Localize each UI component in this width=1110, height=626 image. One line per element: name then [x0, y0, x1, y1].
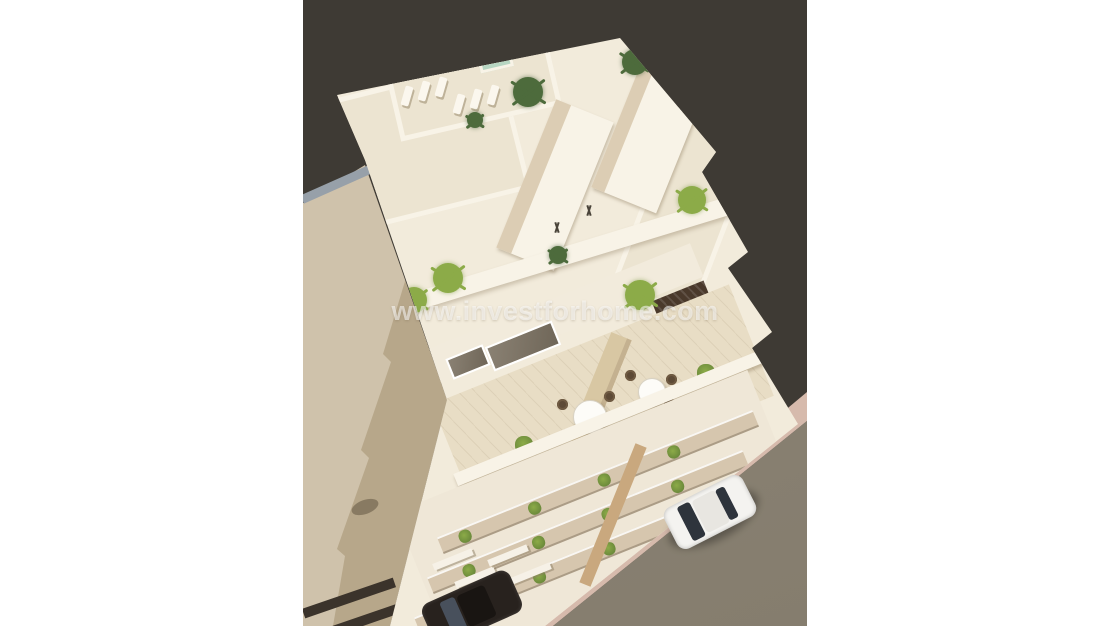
rooftop-tree [622, 49, 648, 75]
balcony-plant [530, 534, 547, 551]
balcony-plant [457, 528, 474, 545]
terrace-chair [557, 399, 568, 410]
rooftop-tree [549, 246, 567, 264]
balcony-plant [596, 472, 613, 489]
terrace-chair [625, 370, 636, 381]
rooftop-tree [513, 77, 543, 107]
palm-tree [678, 186, 706, 214]
terrace-chair [604, 391, 615, 402]
balcony-plant [665, 443, 682, 460]
balcony-plant [526, 500, 543, 517]
photo-canvas: www.investforhome.com [0, 0, 1110, 626]
palm-tree [433, 263, 463, 293]
tv-antenna [583, 205, 595, 215]
tv-antenna [551, 222, 563, 232]
balcony-plant [669, 478, 686, 495]
watermark-text: www.investforhome.com [303, 296, 807, 327]
rooftop-shrub [467, 112, 483, 128]
render-photo: www.investforhome.com [303, 0, 807, 626]
